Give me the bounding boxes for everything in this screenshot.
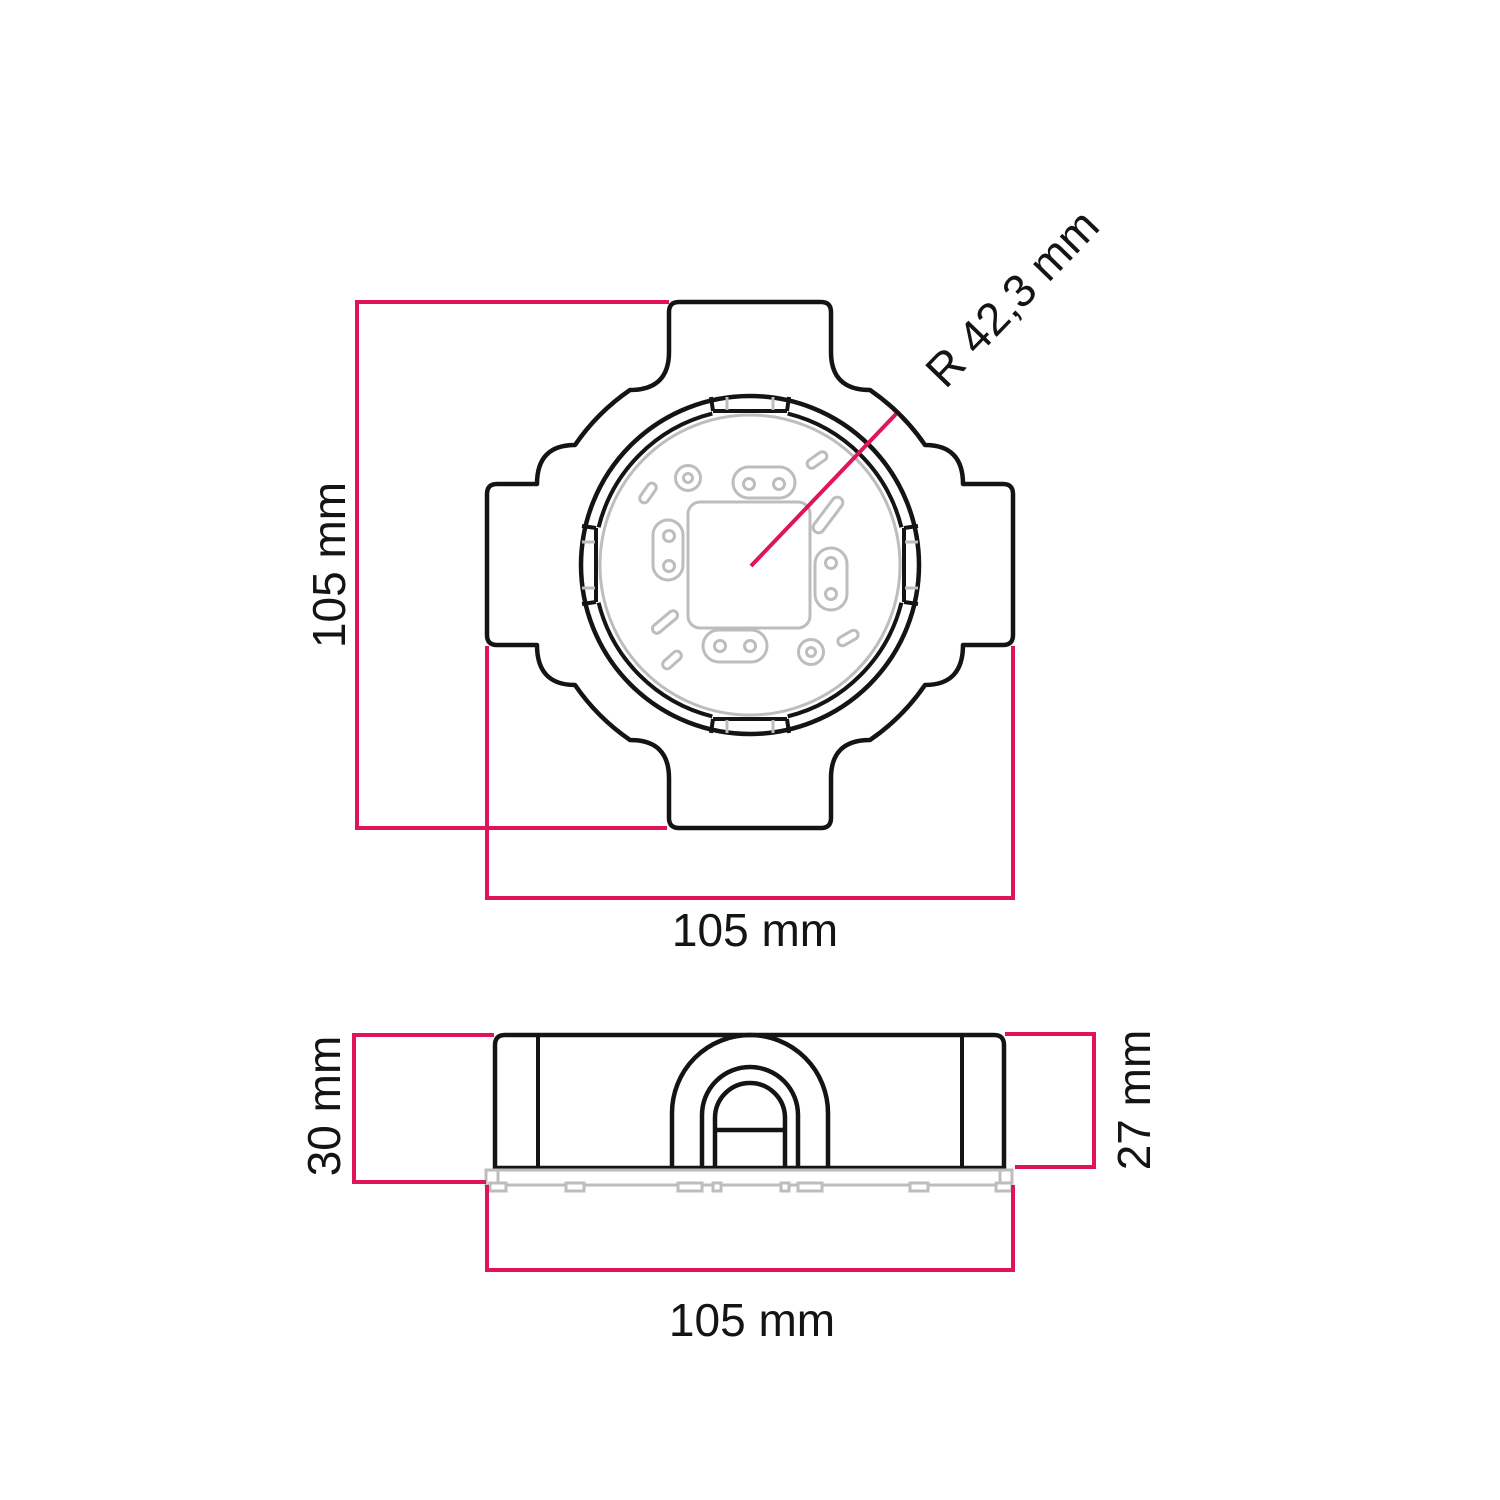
top-view: 105 mm 105 mm R 42,3 mm (303, 199, 1109, 956)
side-view: 30 mm 27 mm 105 mm (298, 1030, 1160, 1346)
dimension-label-side-total-height: 30 mm (298, 1036, 350, 1177)
dimension-bracket-side-total-height (354, 1035, 494, 1182)
base-plate-side (486, 1170, 1012, 1191)
dimension-bracket-side-width (487, 1185, 1013, 1270)
dimension-label-top-view-height: 105 mm (303, 482, 355, 648)
dimension-label-side-body-height: 27 mm (1108, 1030, 1160, 1171)
side-view-body (495, 1035, 1004, 1168)
technical-drawing-canvas: 105 mm 105 mm R 42,3 mm (0, 0, 1500, 1500)
dimension-bracket-side-body-height (1005, 1034, 1094, 1167)
dimension-label-top-view-width: 105 mm (672, 904, 838, 956)
dimension-label-side-width: 105 mm (669, 1294, 835, 1346)
dimension-label-radius: R 42,3 mm (915, 199, 1109, 397)
